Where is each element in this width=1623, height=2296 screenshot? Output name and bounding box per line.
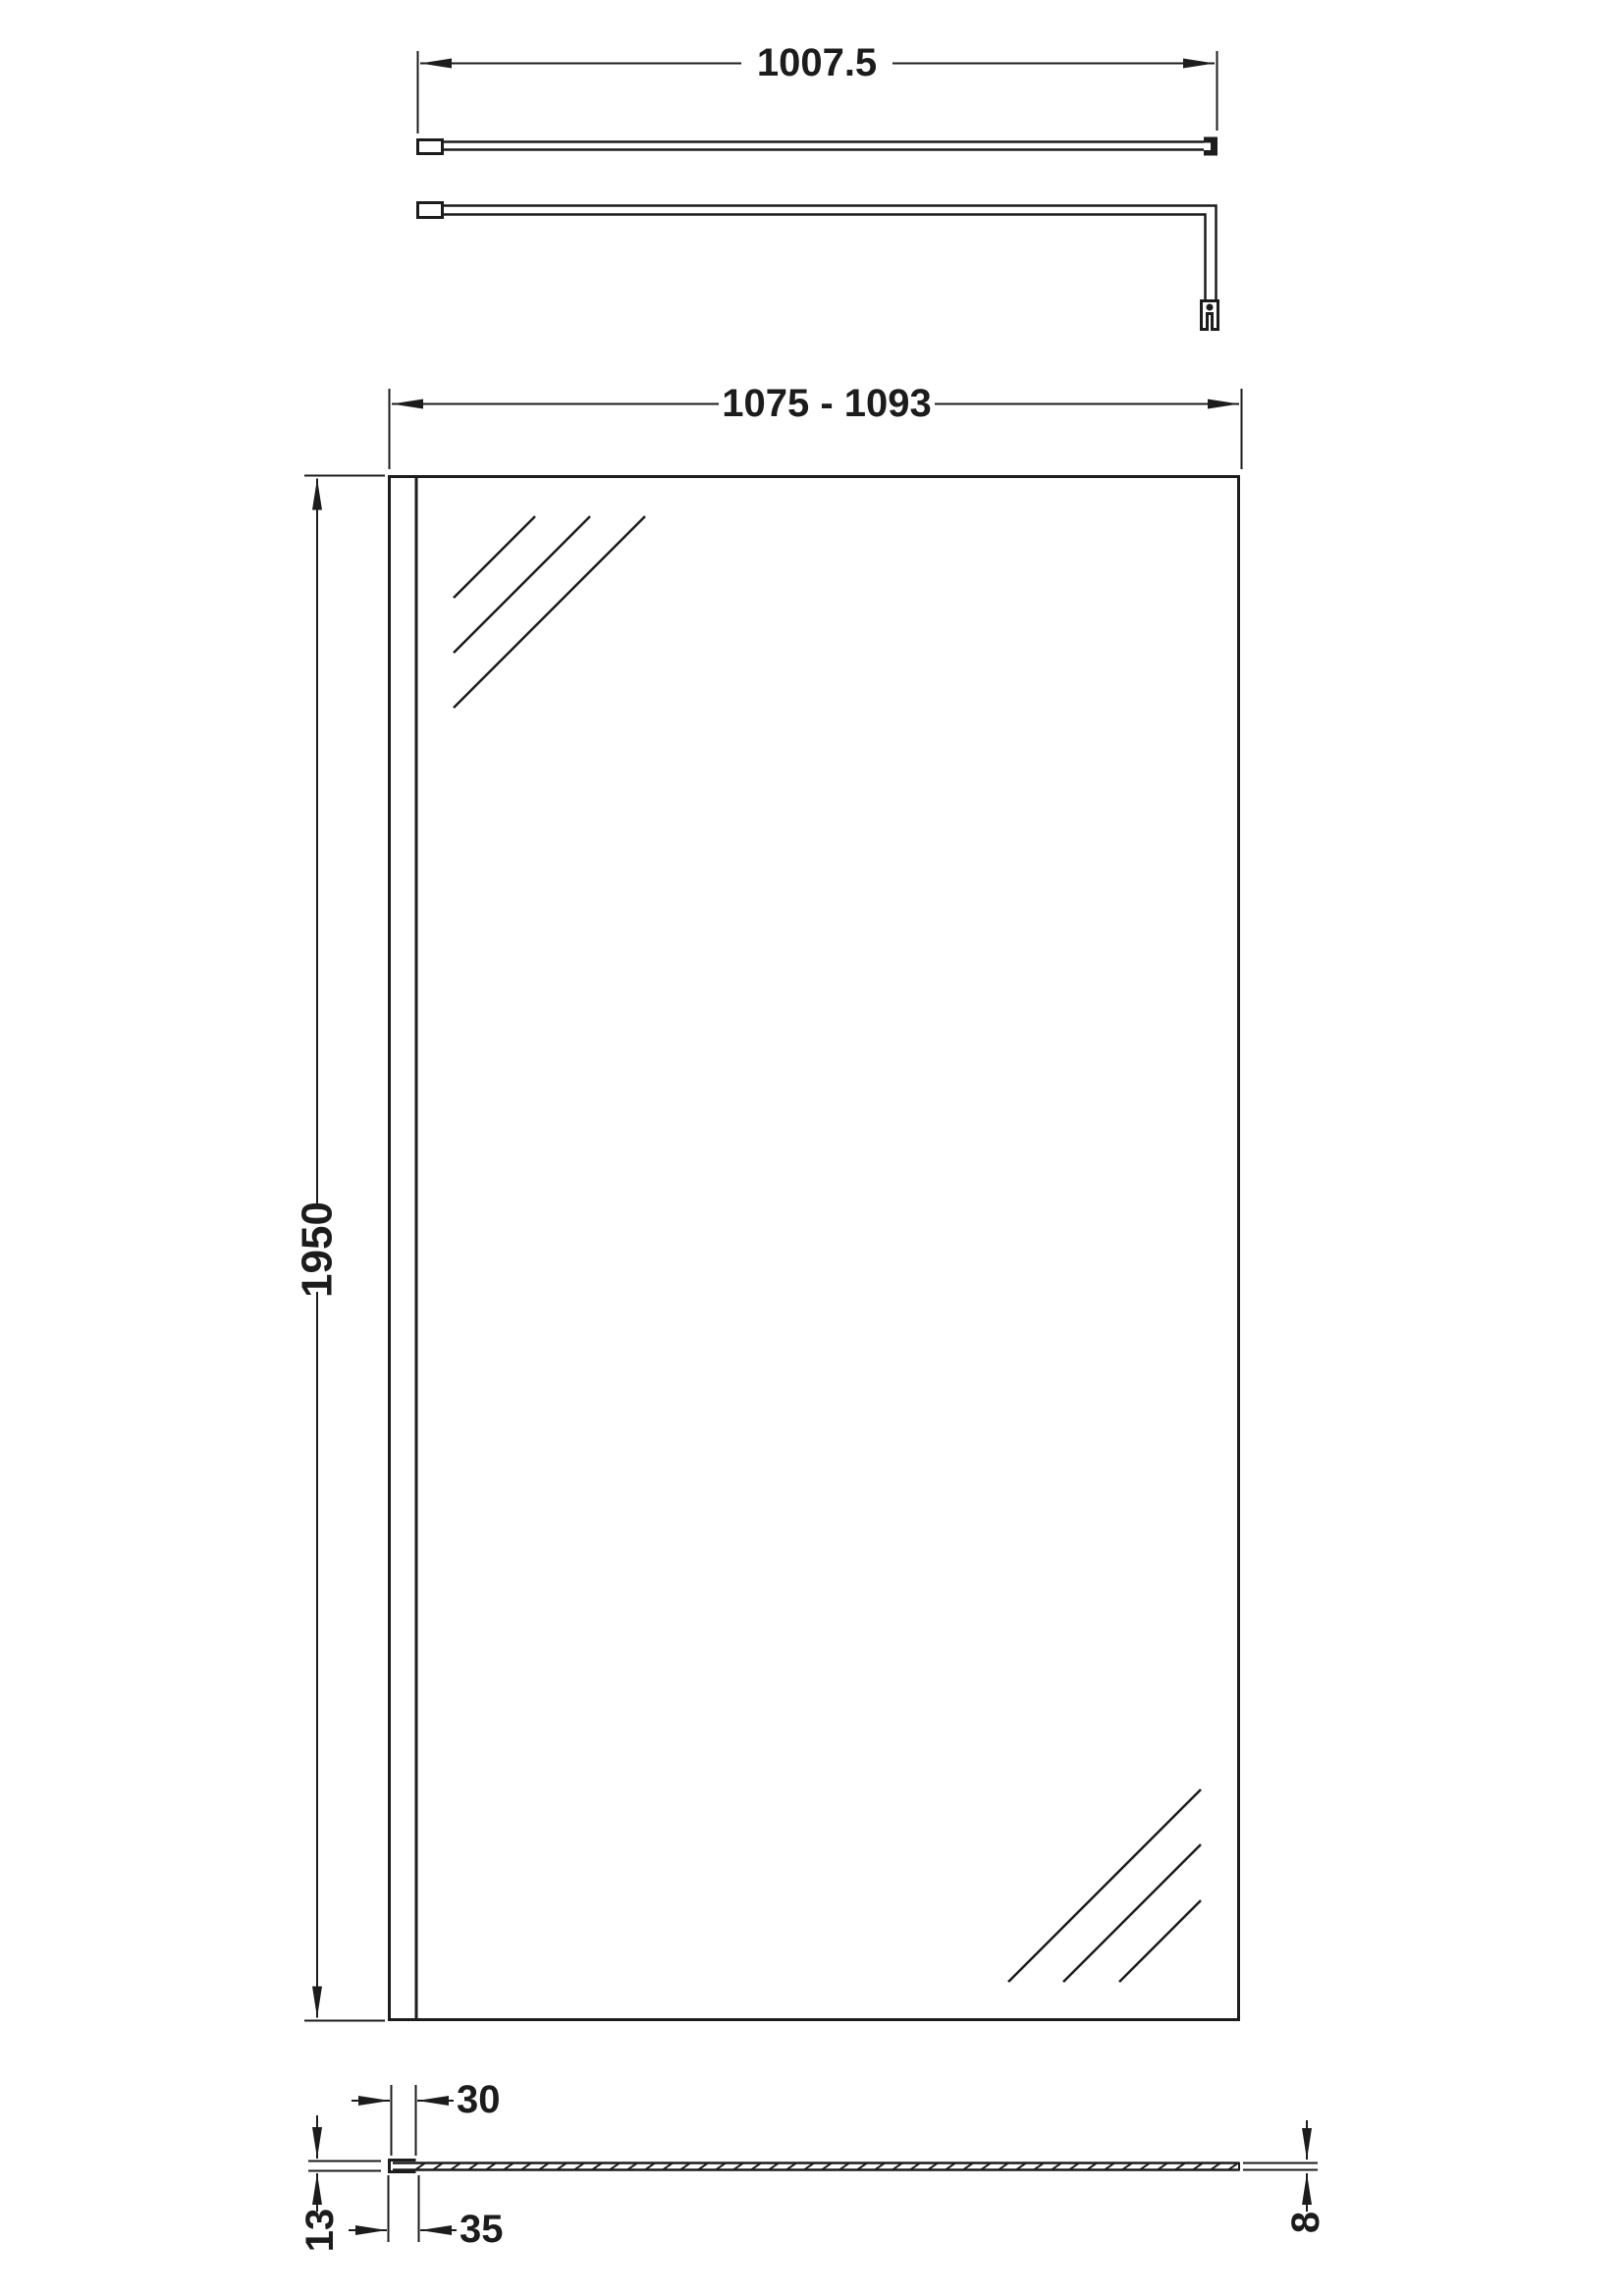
dim-bar-length-label: 1007.5 [757, 41, 877, 84]
dim-overall-width-label: 1075 - 1093 [722, 382, 932, 425]
bar-wall-block [418, 140, 443, 154]
bar-wall-block-side [418, 203, 443, 218]
dim-bar-length: 1007.5 [418, 41, 1217, 133]
glass-clamp [1202, 301, 1218, 330]
support-bar-side-view [418, 203, 1218, 330]
dim-height: 1950 [294, 476, 386, 2021]
glass-hatch-bottom-right [1008, 1789, 1201, 1982]
dim-profile-width: 30 [352, 2078, 501, 2156]
glass-hatch-top-left [454, 516, 645, 708]
bar-glass-bracket [1204, 137, 1217, 156]
dim-profile-width-label: 30 [457, 2078, 501, 2121]
dim-glass-thickness-label: 8 [1284, 2212, 1327, 2233]
drawing-canvas: 1007.5 1075 - 1093 1950 [0, 0, 1623, 2296]
section-view [390, 2161, 1240, 2172]
front-view-panel [390, 477, 1239, 2020]
dim-height-label: 1950 [294, 1201, 342, 1298]
dim-profile-cover-label: 35 [460, 2208, 504, 2251]
dim-profile-cover: 35 [349, 2175, 504, 2251]
support-bar-plan-view [418, 137, 1218, 156]
dim-profile-depth: 13 [298, 2115, 381, 2252]
section-glass [393, 2163, 1239, 2171]
clamp-screw-hole [1207, 304, 1214, 311]
dim-overall-width: 1075 - 1093 [390, 382, 1242, 469]
glass-panel-outline [390, 477, 1239, 2020]
dim-glass-thickness: 8 [1243, 2120, 1327, 2233]
technical-drawing: 1007.5 1075 - 1093 1950 [0, 0, 1623, 2296]
dim-profile-depth-label: 13 [298, 2209, 342, 2253]
